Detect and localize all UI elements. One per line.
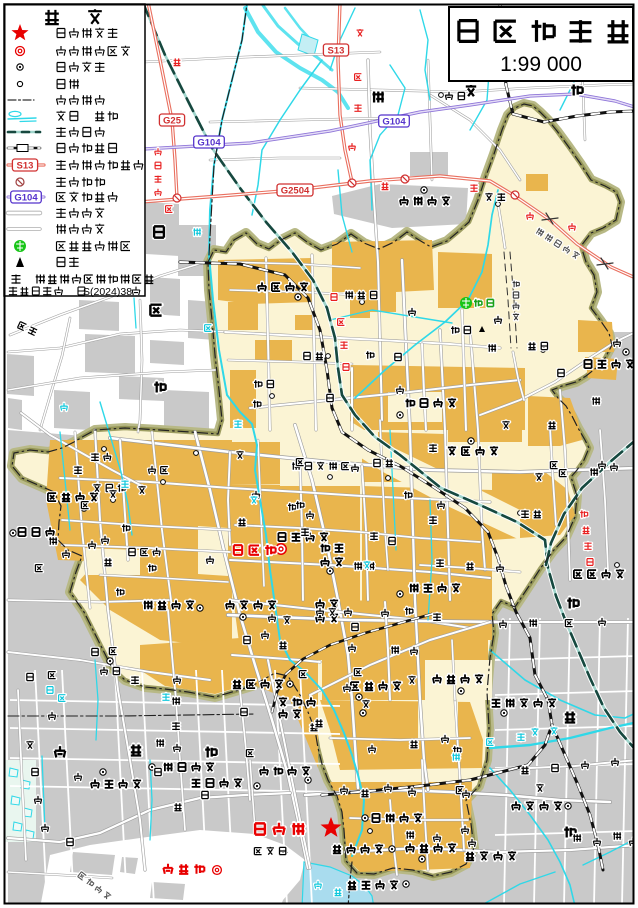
svg-text:G104: G104	[14, 193, 38, 204]
svg-text:S13: S13	[328, 46, 345, 57]
svg-text:G104: G104	[197, 138, 221, 149]
svg-text:S(2024)38: S(2024)38	[83, 286, 132, 298]
svg-text:S13: S13	[17, 161, 34, 172]
svg-text:G25: G25	[163, 116, 182, 127]
svg-text:1:99 000: 1:99 000	[500, 53, 582, 76]
svg-text:G104: G104	[382, 117, 406, 128]
svg-text:G2504: G2504	[281, 186, 310, 197]
